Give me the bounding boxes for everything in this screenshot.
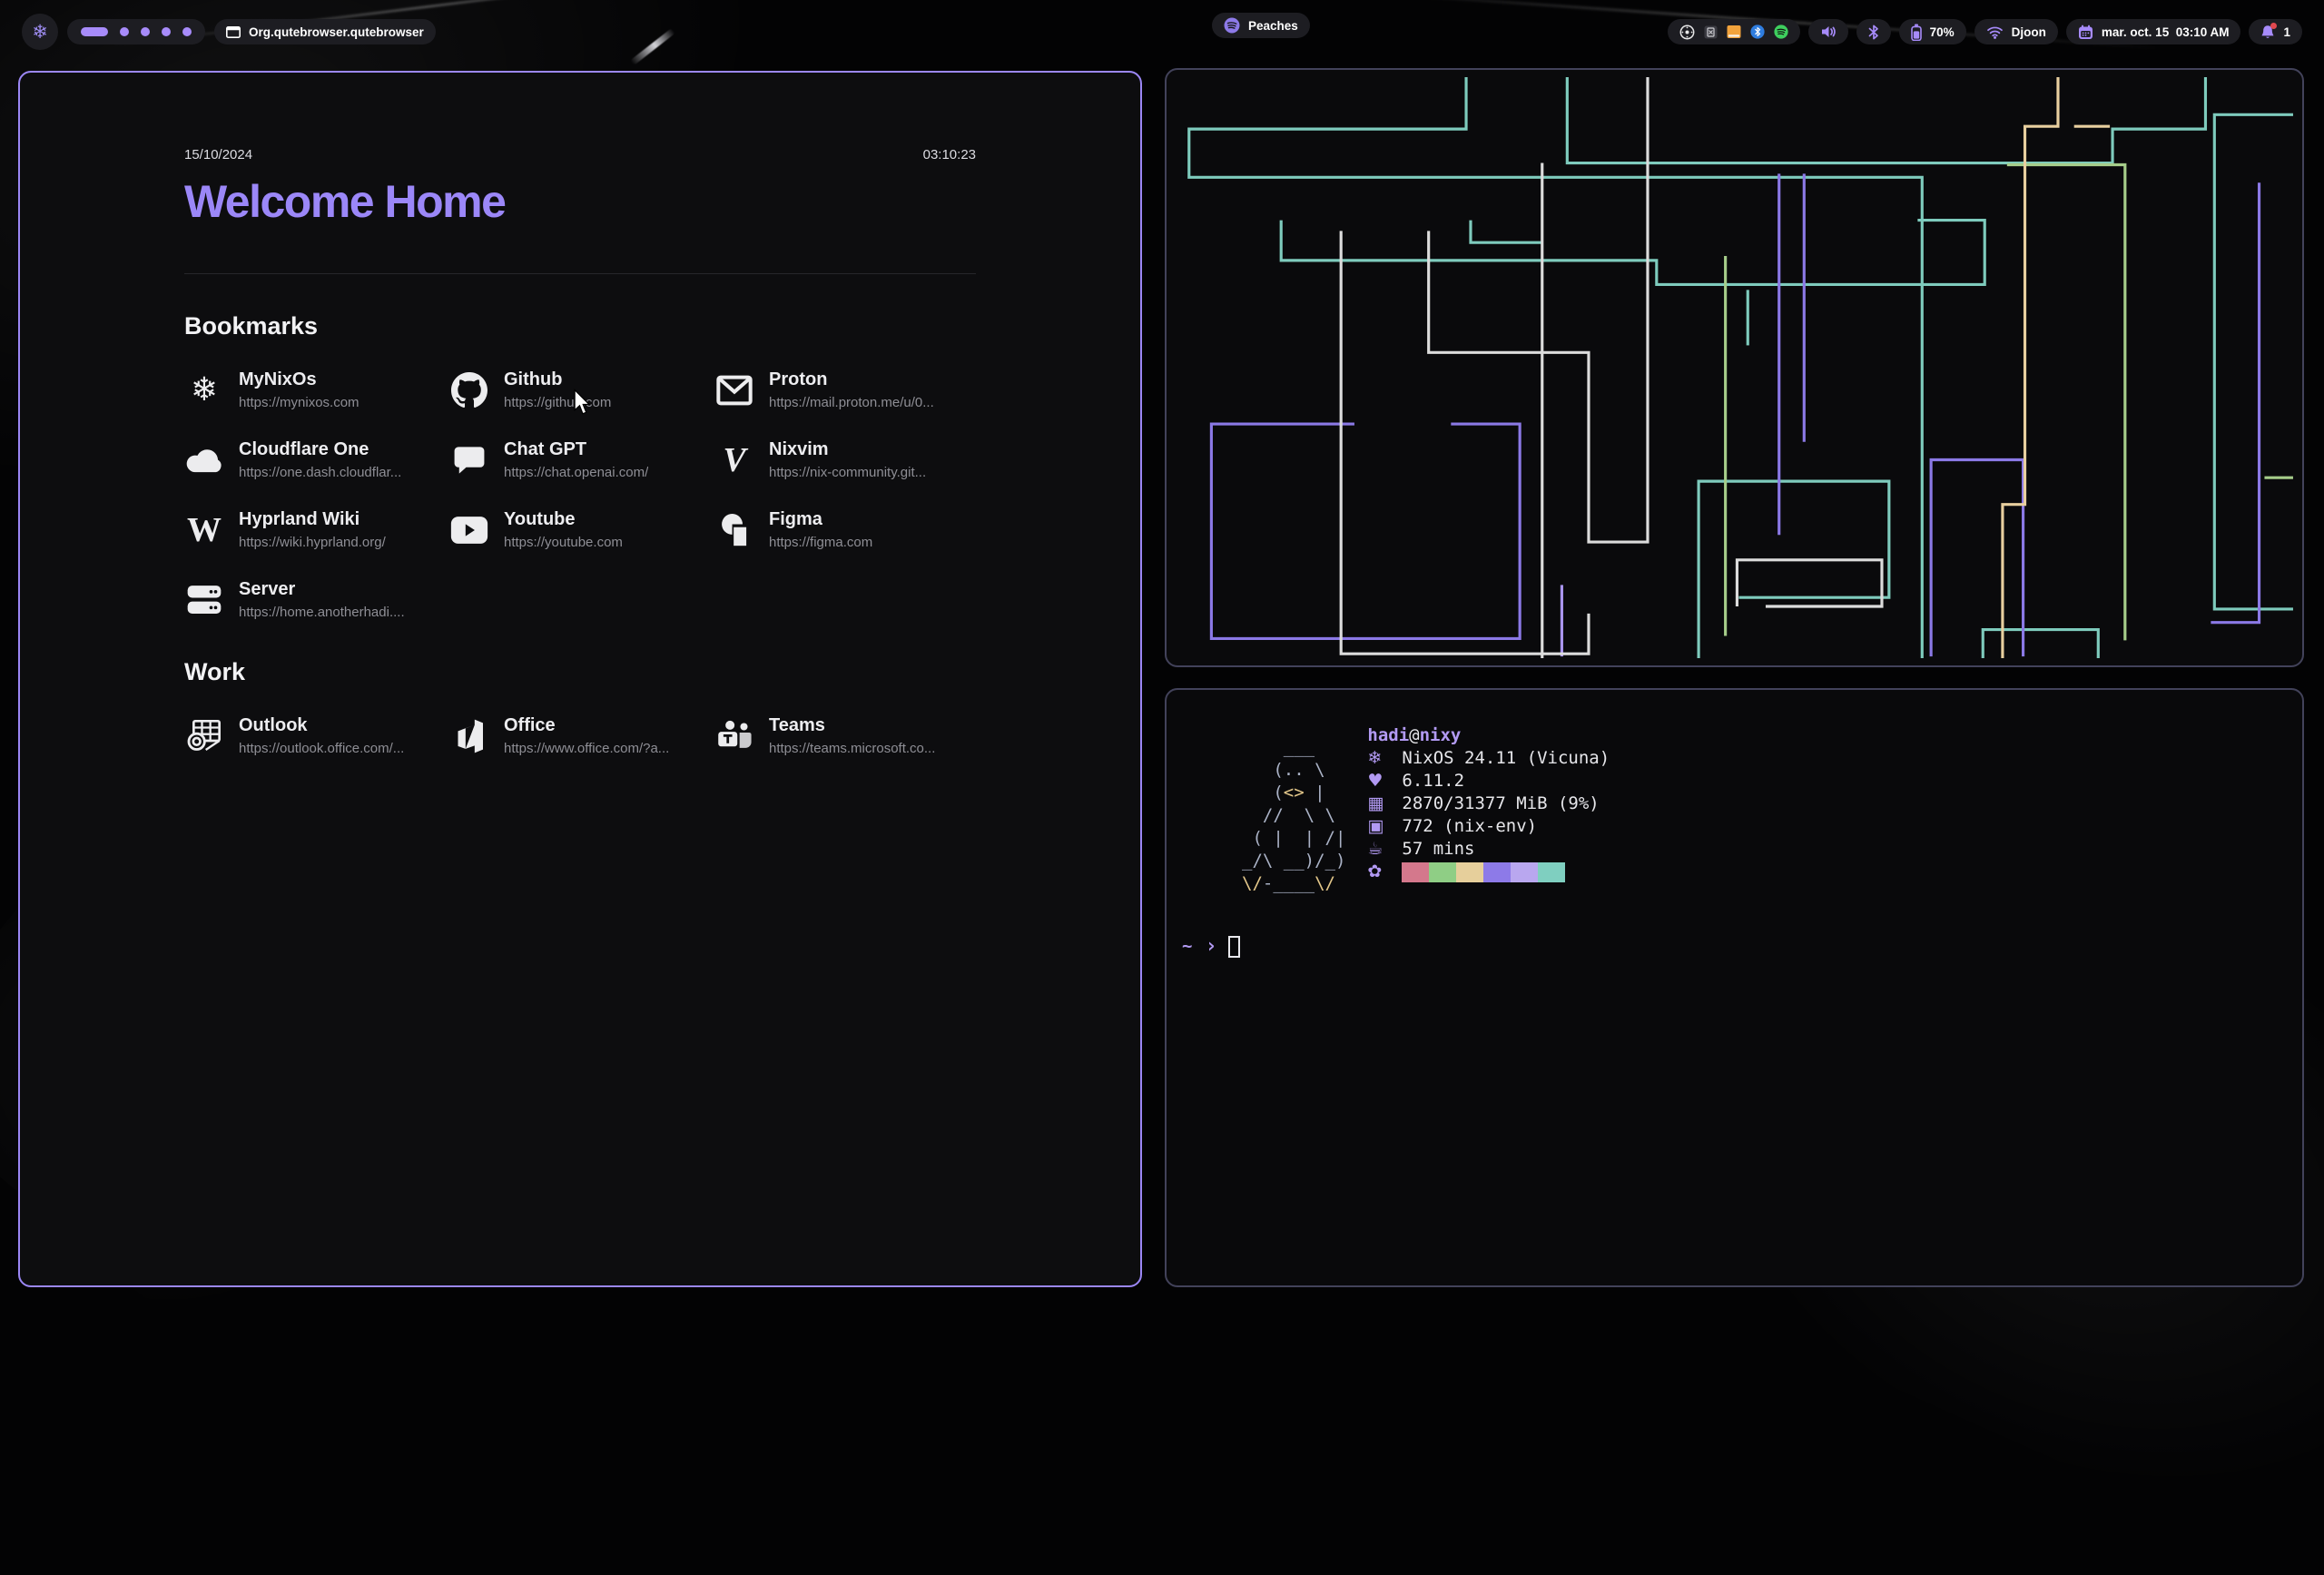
bookmark-tile-wiki[interactable]: WHyprland Wikihttps://wiki.hyprland.org/ bbox=[184, 509, 446, 550]
color-swatch bbox=[1483, 862, 1511, 882]
shell-prompt[interactable]: ~ › bbox=[1182, 935, 2302, 958]
fetch-user-host: hadi@nixy bbox=[1367, 724, 1610, 747]
clock-chip[interactable]: mar. oct. 15 03:10 AM bbox=[2066, 19, 2241, 44]
pipe-segment bbox=[1429, 77, 1648, 542]
spotify-icon bbox=[1224, 17, 1240, 34]
tux-ascii-art: ___ (.. \ (<> | // \ \ ( | | /| _/\ __)/… bbox=[1242, 736, 1345, 895]
bookmark-tile-mynixos[interactable]: ❄MyNixOshttps://mynixos.com bbox=[184, 369, 446, 410]
pipe-segment bbox=[1737, 560, 1882, 606]
outlook-icon bbox=[184, 716, 224, 756]
prompt-chevron-icon: › bbox=[1205, 935, 1216, 958]
tile-text: Serverhttps://home.anotherhadi.... bbox=[239, 579, 405, 620]
chatgpt-icon bbox=[449, 440, 489, 480]
tile-url: https://figma.com bbox=[769, 535, 872, 550]
section-heading-work: Work bbox=[184, 658, 976, 686]
server-icon bbox=[184, 580, 224, 620]
clock-label: mar. oct. 15 03:10 AM bbox=[2102, 25, 2230, 39]
section-heading-bookmarks: Bookmarks bbox=[184, 312, 976, 340]
pipe-segment bbox=[1281, 221, 1984, 285]
bookmark-tile-office[interactable]: Officehttps://www.office.com/?a... bbox=[449, 715, 711, 756]
tile-url: https://youtube.com bbox=[504, 535, 623, 550]
pipe-segment bbox=[1211, 424, 1520, 638]
workspace-dot[interactable] bbox=[120, 27, 129, 36]
workspace-active[interactable] bbox=[81, 27, 108, 36]
mynixos-icon: ❄ bbox=[184, 370, 224, 410]
distro-snowflake-icon: ❄ bbox=[1367, 747, 1402, 770]
divider bbox=[184, 273, 976, 274]
prompt-cwd: ~ bbox=[1182, 935, 1192, 958]
fetch-terminal-window: ___ (.. \ (<> | // \ \ ( | | /| _/\ __)/… bbox=[1165, 688, 2304, 1287]
fetch-value: 6.11.2 bbox=[1402, 770, 1464, 792]
uptime-icon: ☕ bbox=[1367, 838, 1402, 861]
palette-icon: ✿ bbox=[1367, 861, 1402, 883]
fetch-row-packages: ▣772 (nix-env) bbox=[1367, 815, 1610, 838]
tile-text: Hyprland Wikihttps://wiki.hyprland.org/ bbox=[239, 509, 386, 550]
topbar-center-cluster: Peaches bbox=[1212, 13, 1310, 38]
wiki-icon: W bbox=[184, 510, 224, 550]
tile-url: https://chat.openai.com/ bbox=[504, 465, 648, 480]
fetch-row-distro-snowflake: ❄NixOS 24.11 (Vicuna) bbox=[1367, 747, 1610, 770]
tile-url: https://mynixos.com bbox=[239, 395, 359, 410]
startpage-date: 15/10/2024 bbox=[184, 147, 252, 162]
startpage-time: 03:10:23 bbox=[923, 147, 976, 162]
pipe-segment bbox=[1931, 459, 2023, 656]
link-grid: Outlookhttps://outlook.office.com/...Off… bbox=[184, 715, 976, 756]
tile-text: Figmahttps://figma.com bbox=[769, 509, 872, 550]
tile-name: Proton bbox=[769, 369, 934, 390]
bookmark-tile-youtube[interactable]: Youtubehttps://youtube.com bbox=[449, 509, 711, 550]
figma-icon bbox=[714, 510, 754, 550]
fetch-row-colors: ✿ bbox=[1367, 861, 1610, 883]
active-window-title: Org.qutebrowser.qutebrowser bbox=[249, 25, 424, 39]
notification-dot bbox=[2270, 23, 2277, 29]
bookmark-tile-proton[interactable]: Protonhttps://mail.proton.me/u/0... bbox=[714, 369, 976, 410]
tile-url: https://outlook.office.com/... bbox=[239, 741, 404, 756]
fetch-value: NixOS 24.11 (Vicuna) bbox=[1402, 747, 1610, 770]
tile-url: https://one.dash.cloudflar... bbox=[239, 465, 401, 480]
page-title: Welcome Home bbox=[184, 175, 976, 228]
system-tray[interactable] bbox=[1668, 19, 1800, 44]
pipe-segment bbox=[1341, 231, 1589, 654]
teams-icon bbox=[714, 716, 754, 756]
volume-chip[interactable] bbox=[1808, 19, 1848, 44]
memory-icon: ▦ bbox=[1367, 792, 1402, 815]
window-icon bbox=[226, 26, 241, 38]
tile-url: https://nix-community.git... bbox=[769, 465, 926, 480]
fetch-row-memory: ▦2870/31377 MiB (9%) bbox=[1367, 792, 1610, 815]
workspace-dot[interactable] bbox=[141, 27, 150, 36]
bookmark-tile-outlook[interactable]: Outlookhttps://outlook.office.com/... bbox=[184, 715, 446, 756]
battery-icon bbox=[1911, 24, 1922, 41]
record-tray-icon[interactable] bbox=[1679, 25, 1695, 40]
color-swatch bbox=[1511, 862, 1538, 882]
tile-text: Teamshttps://teams.microsoft.co... bbox=[769, 715, 935, 756]
pipe-segment bbox=[2214, 114, 2293, 609]
color-swatch bbox=[1538, 862, 1565, 882]
tile-name: Nixvim bbox=[769, 439, 926, 460]
tile-name: MyNixOs bbox=[239, 369, 359, 390]
workspaces-indicator[interactable] bbox=[67, 19, 205, 44]
volume-icon bbox=[1820, 25, 1837, 39]
terminal-cursor bbox=[1228, 936, 1240, 958]
bookmark-tile-server[interactable]: Serverhttps://home.anotherhadi.... bbox=[184, 579, 446, 620]
tile-text: Nixvimhttps://nix-community.git... bbox=[769, 439, 926, 480]
nix-snowflake-icon: ❄ bbox=[32, 23, 48, 42]
bookmark-tile-cloudflare[interactable]: Cloudflare Onehttps://one.dash.cloudflar… bbox=[184, 439, 446, 480]
active-window-chip[interactable]: Org.qutebrowser.qutebrowser bbox=[214, 19, 436, 44]
bluetooth-tray-icon[interactable] bbox=[1750, 25, 1765, 39]
startpage-datetime-row: 15/10/2024 03:10:23 bbox=[184, 147, 976, 162]
tile-url: https://teams.microsoft.co... bbox=[769, 741, 935, 756]
topbar-right-cluster: 70% Djoon mar. oct. 15 03:10 AM bbox=[1668, 19, 2302, 44]
launcher-button[interactable]: ❄ bbox=[22, 14, 58, 50]
fetch-user: hadi bbox=[1367, 725, 1409, 745]
tile-name: Github bbox=[504, 369, 611, 390]
pipe-segment bbox=[1567, 77, 2205, 163]
youtube-icon bbox=[449, 510, 489, 550]
fastfetch-output: ___ (.. \ (<> | // \ \ ( | | /| _/\ __)/… bbox=[1242, 724, 2302, 895]
cloudflare-icon bbox=[184, 440, 224, 480]
fetch-at: @ bbox=[1409, 725, 1419, 745]
media-player-chip[interactable]: Peaches bbox=[1212, 13, 1310, 38]
tile-name: Cloudflare One bbox=[239, 439, 401, 460]
proton-icon bbox=[714, 370, 754, 410]
nixvim-icon: V bbox=[714, 440, 754, 480]
tile-name: Outlook bbox=[239, 715, 404, 736]
tile-name: Figma bbox=[769, 509, 872, 530]
terminal-content: ___ (.. \ (<> | // \ \ ( | | /| _/\ __)/… bbox=[1167, 690, 2302, 958]
pipes-screensaver bbox=[1176, 77, 2293, 658]
fetch-row-uptime: ☕57 mins bbox=[1367, 838, 1610, 861]
tile-url: https://github.com bbox=[504, 395, 611, 410]
tile-text: Officehttps://www.office.com/?a... bbox=[504, 715, 669, 756]
files-tray-icon[interactable] bbox=[1727, 25, 1741, 39]
media-track-label: Peaches bbox=[1248, 19, 1298, 33]
battery-chip[interactable]: 70% bbox=[1899, 19, 1966, 44]
link-sections: Bookmarks❄MyNixOshttps://mynixos.comGith… bbox=[184, 312, 976, 756]
tile-name: Hyprland Wiki bbox=[239, 509, 386, 530]
pipe-segment bbox=[1699, 481, 1889, 658]
bluetooth-icon bbox=[1868, 25, 1879, 40]
network-chip[interactable]: Djoon bbox=[1974, 19, 2058, 44]
workspace-dot[interactable] bbox=[182, 27, 192, 36]
packages-icon: ▣ bbox=[1367, 815, 1402, 838]
workspace-dot[interactable] bbox=[162, 27, 171, 36]
tile-name: Youtube bbox=[504, 509, 623, 530]
pipe-segment bbox=[1983, 630, 2098, 659]
tile-name: Server bbox=[239, 579, 405, 600]
tile-url: https://wiki.hyprland.org/ bbox=[239, 535, 386, 550]
tile-text: Protonhttps://mail.proton.me/u/0... bbox=[769, 369, 934, 410]
spotify-tray-icon[interactable] bbox=[1774, 25, 1788, 39]
battery-percent: 70% bbox=[1930, 25, 1955, 39]
fetch-row-kernel: ♥6.11.2 bbox=[1367, 770, 1610, 792]
color-swatch bbox=[1402, 862, 1429, 882]
tile-url: https://mail.proton.me/u/0... bbox=[769, 395, 934, 410]
calendar-icon bbox=[2078, 25, 2093, 40]
tile-text: Outlookhttps://outlook.office.com/... bbox=[239, 715, 404, 756]
color-swatch bbox=[1456, 862, 1483, 882]
topbar-left-cluster: ❄ Org.qutebrowser.qutebrowser bbox=[22, 14, 436, 50]
github-icon bbox=[449, 370, 489, 410]
fastfetch-info: hadi@nixy❄NixOS 24.11 (Vicuna)♥6.11.2▦28… bbox=[1367, 724, 1610, 895]
mouse-cursor bbox=[572, 389, 592, 420]
tile-url: https://www.office.com/?a... bbox=[504, 741, 669, 756]
bookmark-tile-chatgpt[interactable]: Chat GPThttps://chat.openai.com/ bbox=[449, 439, 711, 480]
pipe-segment bbox=[2211, 182, 2259, 623]
fetch-host: nixy bbox=[1420, 725, 1462, 745]
color-swatch bbox=[1429, 862, 1456, 882]
pipes-terminal-window bbox=[1165, 68, 2304, 667]
tile-text: Chat GPThttps://chat.openai.com/ bbox=[504, 439, 648, 480]
pipe-segment bbox=[1471, 221, 1542, 243]
fetch-value: 2870/31377 MiB (9%) bbox=[1402, 792, 1599, 815]
tile-name: Chat GPT bbox=[504, 439, 648, 460]
wifi-icon bbox=[1986, 25, 2004, 39]
kernel-icon: ♥ bbox=[1367, 770, 1402, 792]
top-bar: ❄ Org.qutebrowser.qutebrowser Peaches bbox=[0, 13, 2324, 51]
tile-url: https://home.anotherhadi.... bbox=[239, 605, 405, 620]
terminal-color-swatches bbox=[1402, 861, 1565, 883]
tile-name: Teams bbox=[769, 715, 935, 736]
tile-text: Githubhttps://github.com bbox=[504, 369, 611, 410]
tile-text: MyNixOshttps://mynixos.com bbox=[239, 369, 359, 410]
tile-text: Cloudflare Onehttps://one.dash.cloudflar… bbox=[239, 439, 401, 480]
fetch-value: 57 mins bbox=[1402, 838, 1474, 861]
office-icon bbox=[449, 716, 489, 756]
bookmark-tile-figma[interactable]: Figmahttps://figma.com bbox=[714, 509, 976, 550]
bookmark-tile-nixvim[interactable]: VNixvimhttps://nix-community.git... bbox=[714, 439, 976, 480]
bluetooth-chip[interactable] bbox=[1856, 19, 1891, 44]
notifications-chip[interactable]: 1 bbox=[2249, 19, 2302, 44]
notification-count: 1 bbox=[2283, 25, 2290, 39]
fetch-value: 772 (nix-env) bbox=[1402, 815, 1537, 838]
bookmark-tile-teams[interactable]: Teamshttps://teams.microsoft.co... bbox=[714, 715, 976, 756]
keepass-tray-icon[interactable] bbox=[1704, 25, 1718, 39]
qutebrowser-window: 15/10/2024 03:10:23 Welcome Home Bookmar… bbox=[18, 71, 1142, 1287]
tile-name: Office bbox=[504, 715, 669, 736]
wifi-ssid: Djoon bbox=[2012, 25, 2046, 39]
tile-text: Youtubehttps://youtube.com bbox=[504, 509, 623, 550]
